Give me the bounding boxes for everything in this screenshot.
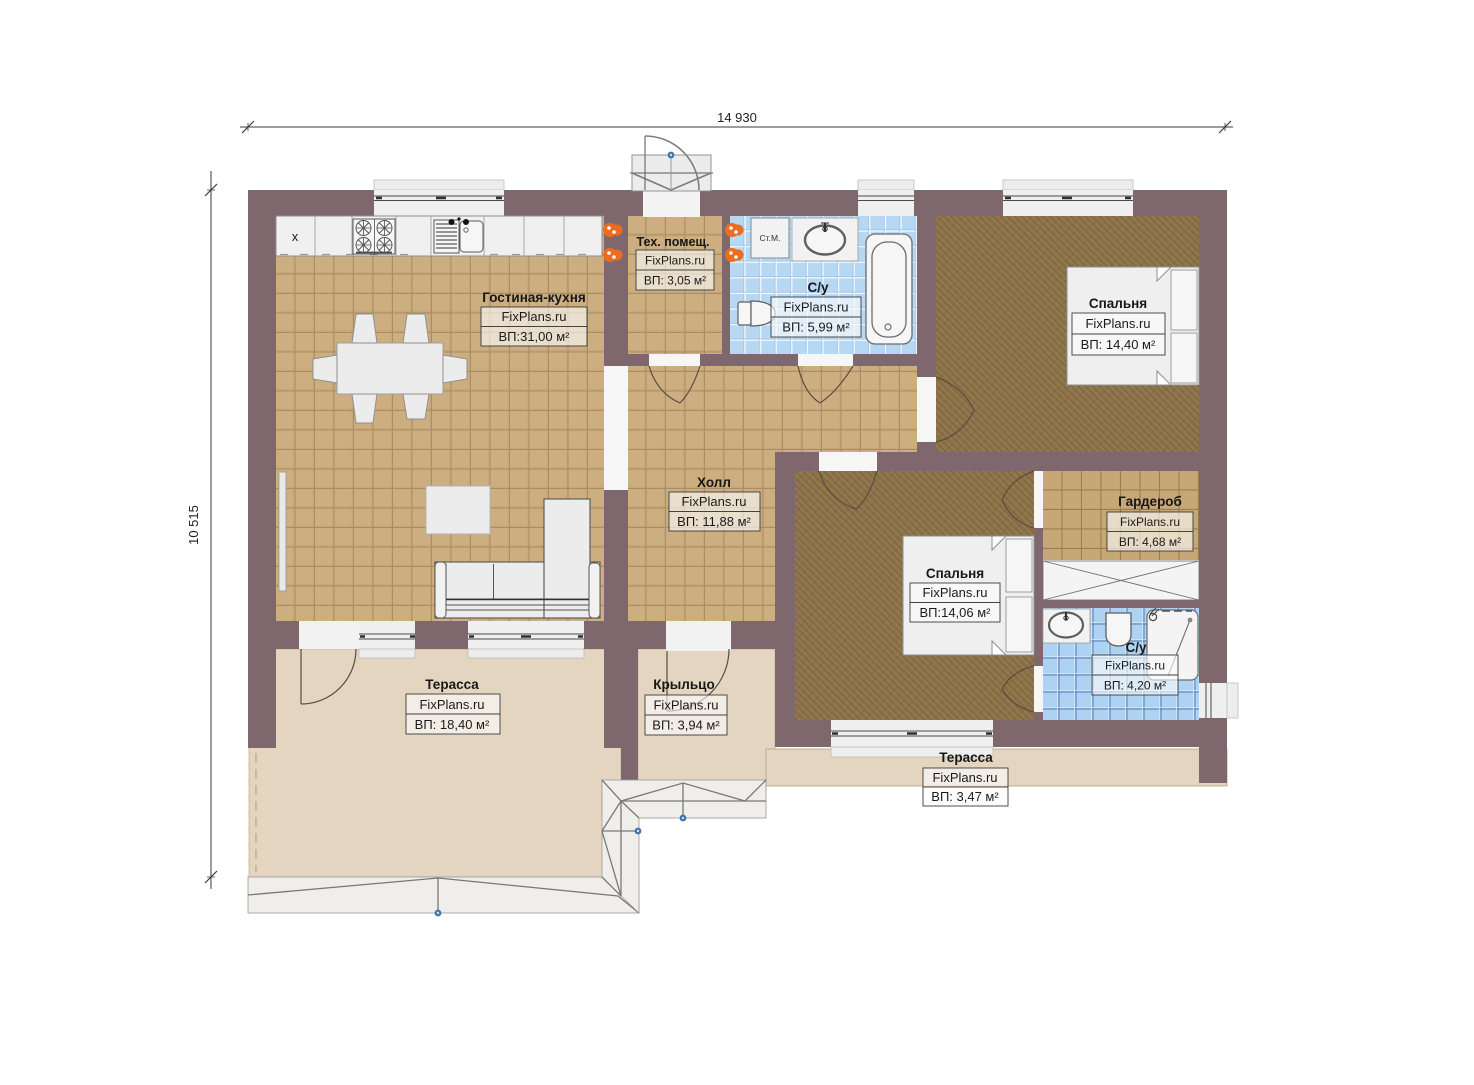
svg-text:ВП: 4,20 м²: ВП: 4,20 м²: [1104, 679, 1166, 693]
svg-text:Терасса: Терасса: [425, 677, 479, 692]
svg-text:Крыльцо: Крыльцо: [653, 677, 714, 692]
svg-text:ВП:14,06 м²: ВП:14,06 м²: [919, 605, 991, 620]
svg-text:ВП:31,00 м²: ВП:31,00 м²: [498, 329, 570, 344]
svg-text:FixPlans.ru: FixPlans.ru: [501, 309, 566, 324]
svg-text:Тех. помещ.: Тех. помещ.: [637, 235, 710, 249]
svg-text:С/у: С/у: [807, 280, 829, 295]
svg-text:Ст.М.: Ст.М.: [760, 233, 781, 243]
svg-text:FixPlans.ru: FixPlans.ru: [932, 770, 997, 785]
svg-text:FixPlans.ru: FixPlans.ru: [653, 698, 718, 713]
svg-text:ВП: 3,05 м²: ВП: 3,05 м²: [644, 274, 706, 288]
svg-text:ВП: 11,88 м²: ВП: 11,88 м²: [677, 514, 751, 529]
svg-text:FixPlans.ru: FixPlans.ru: [645, 254, 705, 268]
svg-text:Спальня: Спальня: [1089, 296, 1147, 311]
svg-text:FixPlans.ru: FixPlans.ru: [681, 494, 746, 509]
svg-text:Холл: Холл: [697, 475, 731, 490]
svg-text:x: x: [292, 229, 299, 244]
svg-text:ВП: 4,68 м²: ВП: 4,68 м²: [1119, 535, 1181, 549]
svg-text:FixPlans.ru: FixPlans.ru: [922, 585, 987, 600]
svg-text:Терасса: Терасса: [939, 750, 993, 765]
svg-text:С/у: С/у: [1125, 640, 1147, 655]
svg-text:ВП: 18,40 м²: ВП: 18,40 м²: [415, 717, 490, 732]
svg-text:FixPlans.ru: FixPlans.ru: [1085, 316, 1150, 331]
svg-text:FixPlans.ru: FixPlans.ru: [1120, 515, 1180, 529]
svg-text:FixPlans.ru: FixPlans.ru: [419, 697, 484, 712]
svg-text:ВП: 3,47 м²: ВП: 3,47 м²: [931, 789, 999, 804]
svg-text:Спальня: Спальня: [926, 566, 984, 581]
svg-text:Гостиная-кухня: Гостиная-кухня: [482, 290, 585, 305]
svg-text:ВП: 14,40 м²: ВП: 14,40 м²: [1081, 337, 1156, 352]
svg-text:FixPlans.ru: FixPlans.ru: [1105, 659, 1165, 673]
svg-text:10 515: 10 515: [186, 505, 201, 545]
svg-text:ВП: 5,99 м²: ВП: 5,99 м²: [782, 320, 850, 335]
svg-text:14 930: 14 930: [717, 110, 757, 125]
svg-text:Гардероб: Гардероб: [1118, 494, 1182, 509]
svg-text:FixPlans.ru: FixPlans.ru: [783, 300, 848, 315]
svg-text:ВП: 3,94 м²: ВП: 3,94 м²: [652, 718, 720, 733]
